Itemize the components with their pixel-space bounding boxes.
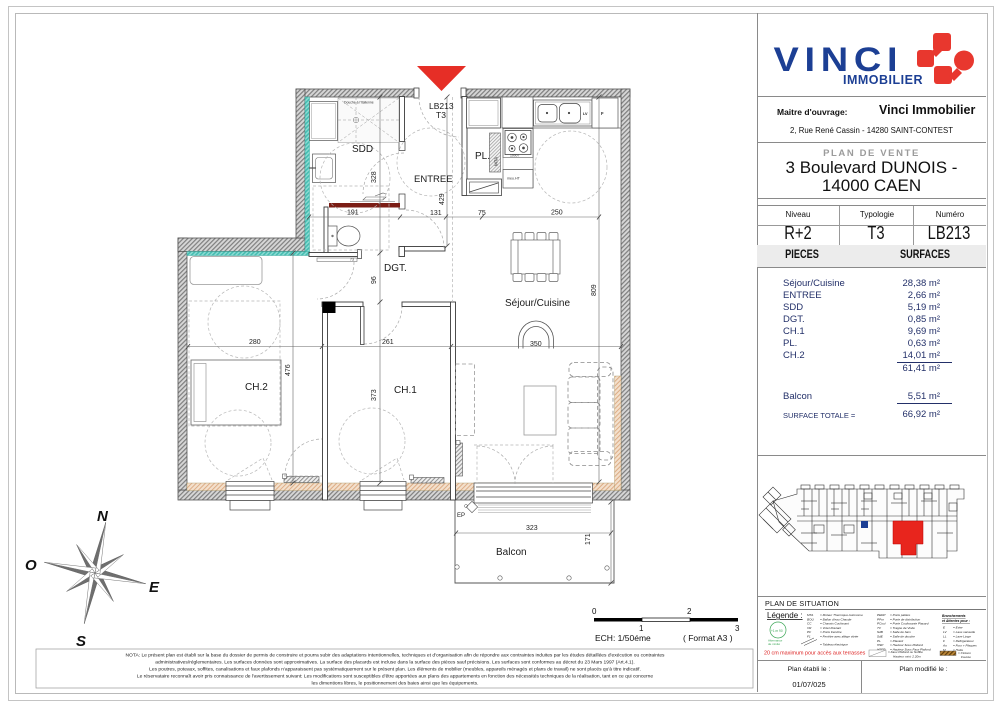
svg-text:CH.1: CH.1 [394,385,417,396]
svg-text:S: S [76,633,86,650]
svg-text:= Four + Plaques: = Four + Plaques [953,644,977,648]
svg-text:Le réservataire reconnaît avoi: Le réservataire reconnaît avoir pris con… [137,674,654,680]
svg-text:809: 809 [591,284,598,296]
svg-text:476: 476 [285,364,292,376]
svg-text:EP: EP [457,513,465,519]
svg-text:MTA: MTA [494,157,499,166]
svg-text:SDD: SDD [352,144,373,155]
svg-text:NOTA: Le présent plan est étab: NOTA: Le présent plan est établi sur la … [126,653,666,659]
svg-text:171: 171 [585,533,592,545]
svg-text:F1: F1 [807,635,811,639]
svg-text:429: 429 [439,193,446,205]
svg-text:0: 0 [592,607,597,616]
svg-text:LV: LV [583,112,588,116]
svg-text:E: E [943,626,946,630]
svg-text:= Lave Linge: = Lave Linge [953,635,971,639]
svg-text:73: 73 [350,258,354,262]
svg-text:Légende :: Légende : [767,611,803,620]
svg-text:96: 96 [371,276,378,284]
svg-text:1000 l: 1000 l [510,154,519,158]
svg-text:373: 373 [371,389,378,401]
svg-text:administratives/réglementaires: administratives/réglementaires. Les surf… [155,660,635,666]
svg-text:Ao: Ao [942,644,947,648]
svg-text:IMMOBILIER: IMMOBILIER [843,73,923,87]
svg-text:1: 1 [639,624,644,633]
svg-text:meu.HT: meu.HT [507,177,521,181]
svg-text:= Réfrigérateur: = Réfrigérateur [953,639,975,643]
svg-text:O: O [25,557,37,574]
svg-text:PL.: PL. [475,151,490,162]
svg-text:Balcon: Balcon [496,547,527,558]
svg-text:131: 131 [430,210,442,217]
svg-text:Douche à l'Italienne: Douche à l'Italienne [344,101,374,105]
svg-text:Hauteur mini: 2.20m: Hauteur mini: 2.20m [893,655,921,659]
svg-text:de mixité: de mixité [768,642,780,646]
svg-text:CH.2: CH.2 [245,382,268,393]
svg-text:= Faux Plafond ou Soffite: = Faux Plafond ou Soffite [888,650,923,654]
svg-text:( Format A3 ): ( Format A3 ) [683,633,733,643]
svg-text:ENTREE: ENTREE [414,174,453,185]
svg-text:F: F [601,111,604,116]
svg-text:ECH: 1/50éme: ECH: 1/50éme [595,633,651,643]
svg-text:= Fenêtre avec allège vitrée: = Fenêtre avec allège vitrée [820,635,859,639]
svg-text:T3: T3 [436,110,446,120]
svg-text:F: F [943,639,946,643]
svg-text:250: 250 [551,210,563,217]
svg-text:LL: LL [943,635,947,639]
svg-text:75: 75 [478,210,486,217]
svg-text:280: 280 [249,339,261,346]
svg-text:Les poutres, poteaux, soffites: Les poutres, poteaux, soffites, canalisa… [149,667,641,673]
svg-text:20 cm maximum pour accès aux t: 20 cm maximum pour accès aux terrasses [764,651,866,657]
svg-text:et Attentes pour :: et Attentes pour : [942,619,970,623]
svg-text:N: N [97,508,109,525]
svg-text:350: 350 [530,341,542,348]
svg-text:2: 2 [687,607,692,616]
svg-text:les dimentions libres, le posi: les dimentions libres, le positionnement… [312,681,479,687]
svg-text:261: 261 [382,339,394,346]
svg-text:328: 328 [371,171,378,183]
svg-text:= Tableau électrique: = Tableau électrique [820,643,848,647]
svg-text:191: 191 [347,210,359,217]
svg-text:323: 323 [526,525,538,532]
svg-text:= Lave vaisselle: = Lave vaisselle [953,630,975,634]
svg-text:DGT.: DGT. [384,263,407,274]
svg-text:E: E [149,579,160,596]
svg-text:= Evier: = Evier [953,626,964,630]
svg-text:Fourée: Fourée [961,655,971,659]
svg-text:Séjour/Cuisine: Séjour/Cuisine [505,298,570,309]
svg-text:LV: LV [943,630,948,634]
svg-text:Branchements: Branchements [942,614,966,618]
svg-text:+1 m 90: +1 m 90 [771,629,783,633]
svg-text:3: 3 [735,624,740,633]
